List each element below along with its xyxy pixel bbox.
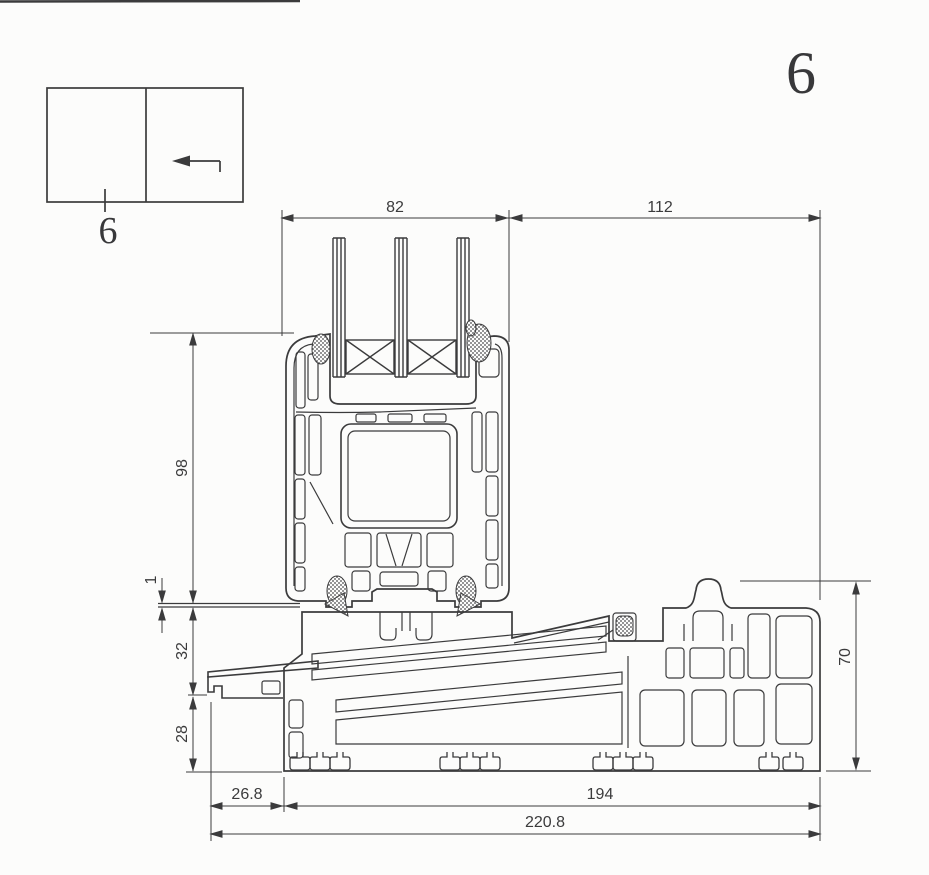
glass-pane: [457, 238, 469, 377]
dim-label-220-8: 220.8: [525, 814, 565, 831]
key-section-label: 6: [99, 210, 118, 252]
frame-sloped-chambers: [312, 626, 628, 748]
left-arrow-icon: [172, 156, 220, 173]
dim-1: [159, 578, 165, 633]
sash-outline: [286, 334, 509, 607]
frame-profile: [284, 579, 820, 771]
glazing-rebate-web: [296, 408, 476, 413]
scan-edge-artifact: [0, 1, 300, 2]
glass-pane: [395, 238, 407, 377]
drawing-sheet: 6 6: [0, 0, 929, 875]
dimension-lines: [150, 210, 871, 841]
dim-left-stack: [150, 333, 294, 772]
key-diagram: [47, 88, 243, 212]
sash-profile: [286, 320, 509, 616]
dim-82-112: [282, 210, 820, 600]
dim-label-26-8: 26.8: [231, 786, 262, 803]
triple-glazing-unit: [333, 238, 469, 377]
dim-label-1: 1: [143, 575, 160, 584]
dim-label-112: 112: [647, 199, 673, 216]
glazing-spacer: [408, 340, 456, 374]
technical-drawing: 6 6: [0, 0, 929, 875]
sash-inner-wall: [294, 344, 313, 586]
dimension-labels: 82 112 98 1 32 28 70 26.8 194 220.8: [143, 199, 854, 831]
dim-70: [740, 581, 871, 771]
sill-extension-profile: [208, 661, 318, 698]
dim-label-82: 82: [386, 199, 404, 216]
hardware-interlock: [684, 611, 732, 641]
glass-pane: [333, 238, 345, 377]
frame-center-hooks: [380, 612, 432, 640]
dim-label-70: 70: [837, 648, 854, 666]
sheet-number: 6: [786, 40, 816, 106]
glazing-gasket: [312, 320, 491, 364]
dim-label-28: 28: [174, 725, 191, 743]
sash-chambers: [295, 349, 499, 591]
dim-label-194: 194: [587, 786, 614, 803]
screw-channel-feet: [290, 752, 803, 770]
dim-label-32: 32: [174, 642, 191, 660]
weather-lip-line: [158, 604, 300, 608]
dim-label-98: 98: [174, 459, 191, 477]
sash-bottom-gasket: [325, 576, 480, 616]
steel-chamber: [341, 424, 457, 528]
frame-right-chambers: [289, 614, 812, 758]
glazing-spacer: [346, 340, 394, 374]
key-diagram-box: [47, 88, 243, 202]
sash-lower-chambers: [345, 533, 453, 591]
